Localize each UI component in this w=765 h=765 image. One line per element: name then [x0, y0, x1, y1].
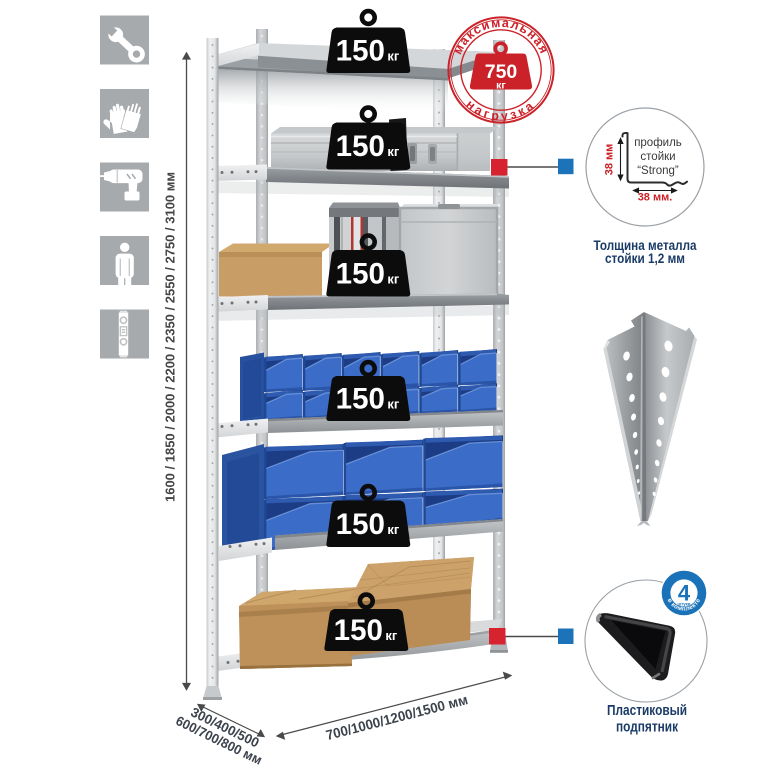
svg-text:кг: кг [385, 628, 398, 643]
svg-text:150: 150 [336, 130, 385, 163]
svg-text:150: 150 [336, 383, 385, 416]
svg-text:стойки 1,2 мм: стойки 1,2 мм [605, 251, 685, 266]
svg-text:150: 150 [336, 34, 385, 67]
svg-text:профиль: профиль [634, 137, 682, 149]
svg-text:150: 150 [336, 257, 385, 290]
svg-text:кг: кг [387, 48, 400, 63]
svg-text:кг: кг [387, 522, 400, 537]
svg-text:150: 150 [336, 508, 385, 541]
svg-text:1600 / 1850 / 2000 / 2200 / 23: 1600 / 1850 / 2000 / 2200 / 2350 / 2550 … [163, 172, 178, 502]
svg-text:38 мм: 38 мм [604, 144, 616, 176]
svg-text:“Strong”: “Strong” [637, 165, 679, 177]
svg-text:кг: кг [387, 144, 400, 159]
svg-text:подпятник: подпятник [616, 720, 679, 736]
svg-text:кг: кг [496, 80, 506, 92]
svg-text:Пластиковый: Пластиковый [607, 703, 687, 719]
svg-text:кг: кг [387, 271, 400, 286]
svg-text:кг: кг [387, 397, 400, 412]
svg-text:стойки: стойки [640, 151, 675, 163]
svg-text:150: 150 [334, 614, 383, 647]
svg-text:38 мм.: 38 мм. [638, 192, 673, 204]
